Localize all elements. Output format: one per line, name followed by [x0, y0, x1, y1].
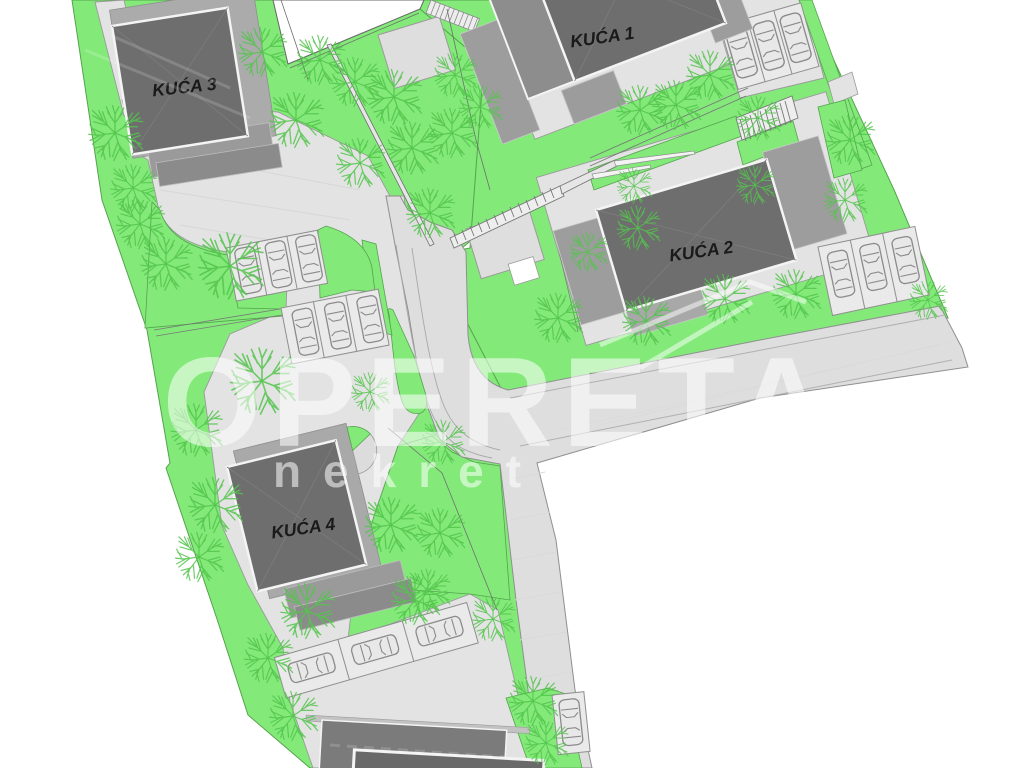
svg-text:nekret: nekret [273, 445, 543, 497]
